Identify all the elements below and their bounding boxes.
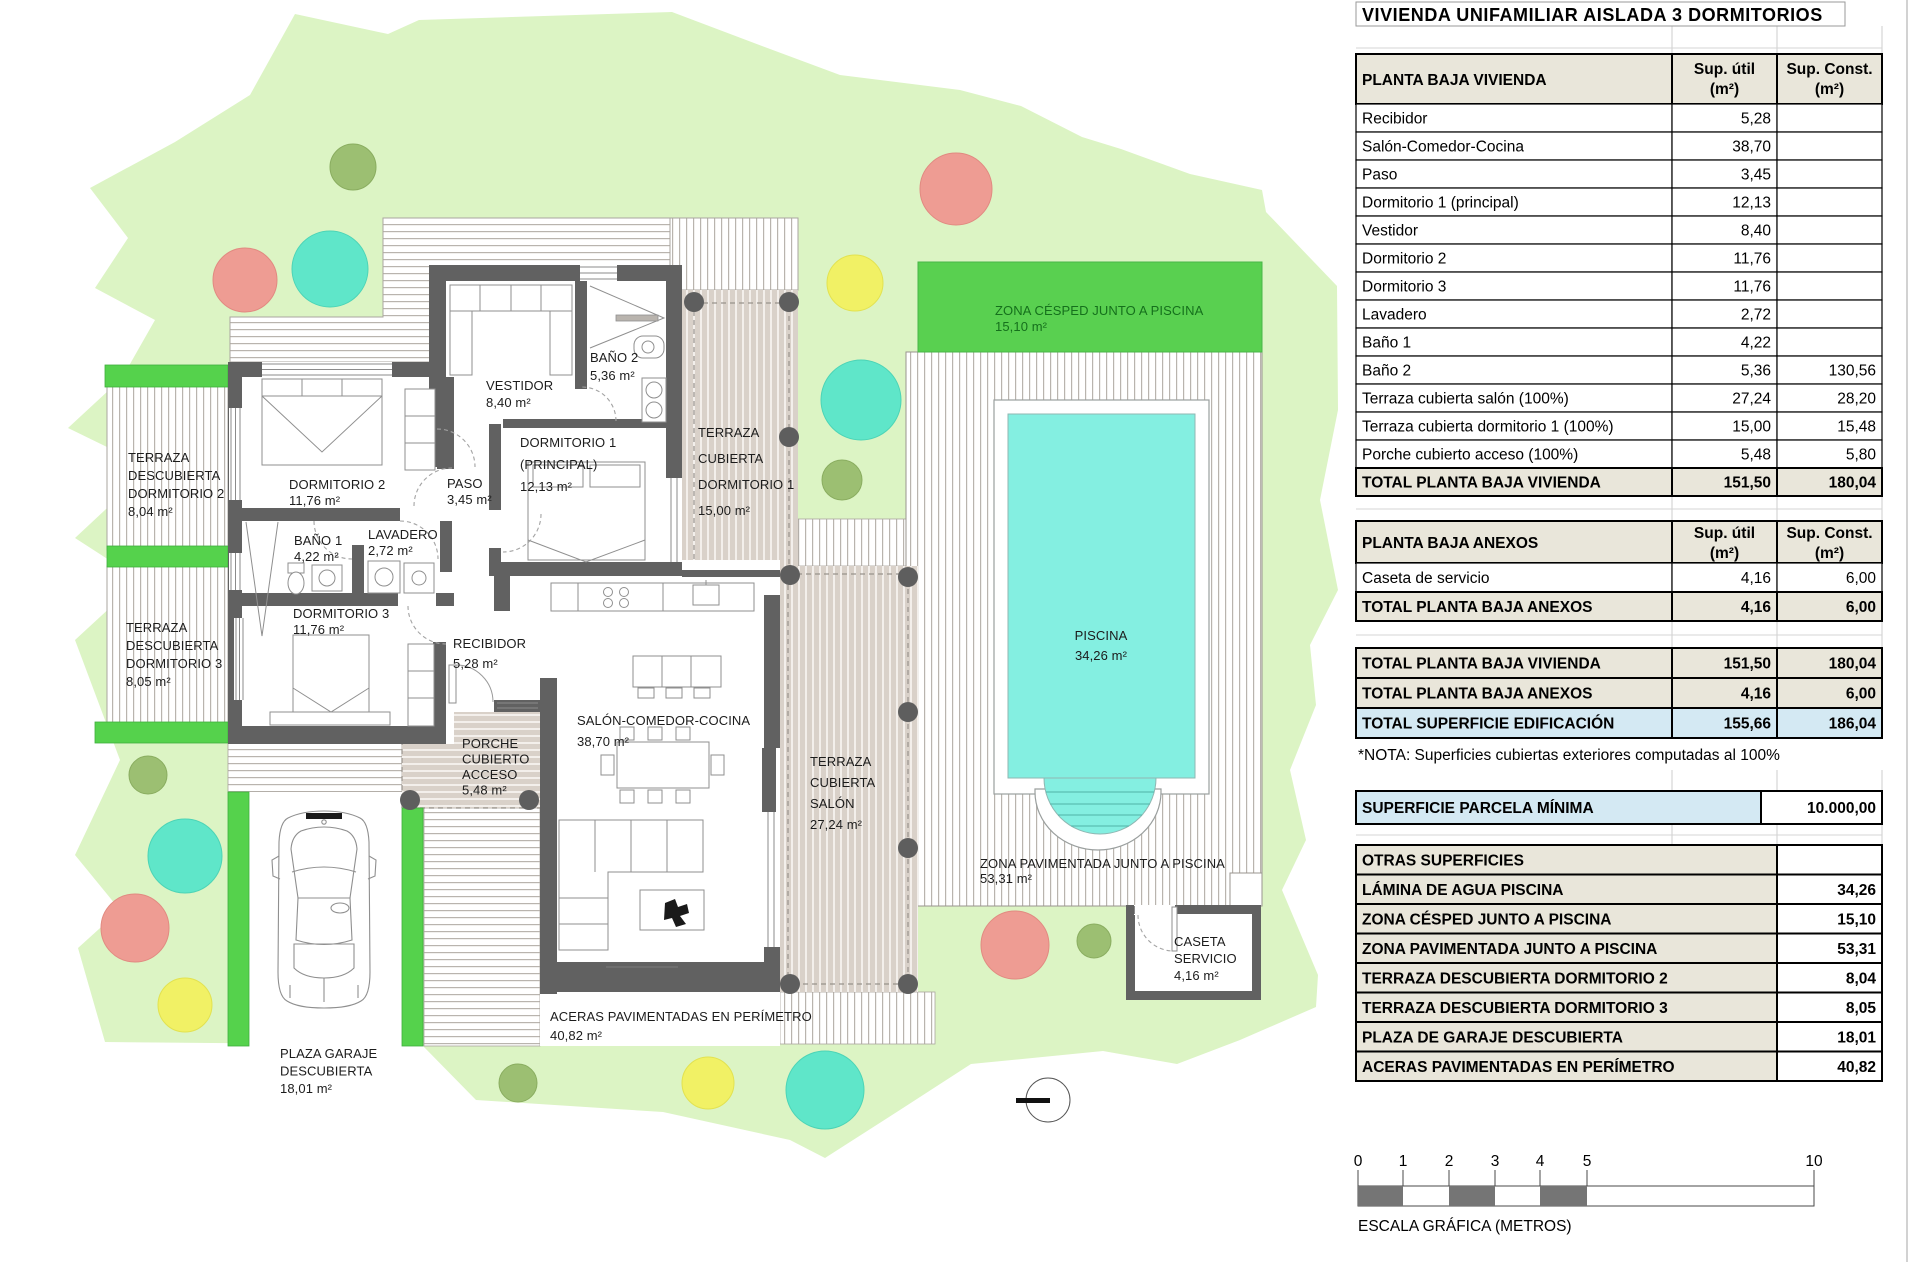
- svg-text:2: 2: [1445, 1153, 1454, 1170]
- svg-text:4: 4: [1536, 1153, 1545, 1170]
- svg-text:15,10 m²: 15,10 m²: [995, 319, 1048, 334]
- svg-text:4,16 m²: 4,16 m²: [1174, 968, 1219, 983]
- svg-text:VIVIENDA UNIFAMILIAR AISLADA 3: VIVIENDA UNIFAMILIAR AISLADA 3 DORMITORI…: [1362, 5, 1823, 25]
- svg-text:18,01 m²: 18,01 m²: [280, 1081, 333, 1096]
- svg-text:11,76: 11,76: [1733, 279, 1771, 296]
- svg-text:CUBIERTO: CUBIERTO: [462, 752, 530, 767]
- svg-text:186,04: 186,04: [1829, 716, 1877, 733]
- svg-text:5,28 m²: 5,28 m²: [453, 656, 498, 671]
- svg-text:RECIBIDOR: RECIBIDOR: [453, 636, 526, 651]
- svg-text:TERRAZA: TERRAZA: [128, 450, 190, 465]
- svg-text:SALÓN-COMEDOR-COCINA: SALÓN-COMEDOR-COCINA: [577, 713, 750, 728]
- svg-text:5: 5: [1583, 1153, 1592, 1170]
- svg-text:SALÓN: SALÓN: [810, 796, 855, 811]
- svg-text:38,70: 38,70: [1732, 139, 1771, 156]
- svg-text:10.000,00: 10.000,00: [1807, 800, 1876, 817]
- svg-text:ZONA PAVIMENTADA JUNTO A PISCI: ZONA PAVIMENTADA JUNTO A PISCINA: [980, 856, 1225, 871]
- svg-text:ACERAS PAVIMENTADAS EN PERÍMET: ACERAS PAVIMENTADAS EN PERÍMETRO: [550, 1009, 812, 1024]
- svg-text:PLAZA DE GARAJE DESCUBIERTA: PLAZA DE GARAJE DESCUBIERTA: [1362, 1029, 1623, 1046]
- svg-text:5,80: 5,80: [1846, 447, 1877, 464]
- svg-text:40,82: 40,82: [1837, 1059, 1876, 1076]
- svg-text:OTRAS SUPERFICIES: OTRAS SUPERFICIES: [1362, 852, 1524, 869]
- svg-text:Salón-Comedor-Cocina: Salón-Comedor-Cocina: [1362, 139, 1524, 156]
- svg-text:15,10: 15,10: [1837, 911, 1876, 928]
- svg-text:Baño 2: Baño 2: [1362, 363, 1411, 380]
- svg-text:BAÑO 1: BAÑO 1: [294, 533, 342, 548]
- svg-text:Sup. útil: Sup. útil: [1694, 525, 1755, 542]
- svg-text:12,13 m²: 12,13 m²: [520, 479, 573, 494]
- svg-text:BAÑO 2: BAÑO 2: [590, 350, 638, 365]
- svg-text:15,00: 15,00: [1732, 419, 1771, 436]
- svg-text:Lavadero: Lavadero: [1362, 307, 1427, 324]
- svg-text:53,31 m²: 53,31 m²: [980, 871, 1033, 886]
- svg-text:Dormitorio 3: Dormitorio 3: [1362, 279, 1446, 296]
- svg-text:PASO: PASO: [447, 476, 483, 491]
- svg-text:11,76 m²: 11,76 m²: [289, 493, 341, 508]
- svg-text:11,76 m²: 11,76 m²: [293, 622, 345, 637]
- svg-text:DESCUBIERTA: DESCUBIERTA: [280, 1064, 373, 1079]
- svg-text:TERRAZA DESCUBIERTA DORMITORIO: TERRAZA DESCUBIERTA DORMITORIO 2: [1362, 970, 1668, 987]
- svg-text:28,20: 28,20: [1837, 391, 1876, 408]
- svg-text:CASETA: CASETA: [1174, 934, 1226, 949]
- svg-text:38,70 m²: 38,70 m²: [577, 734, 630, 749]
- svg-text:TOTAL PLANTA BAJA ANEXOS: TOTAL PLANTA BAJA ANEXOS: [1362, 599, 1593, 616]
- svg-text:DESCUBIERTA: DESCUBIERTA: [128, 468, 221, 483]
- svg-text:180,04: 180,04: [1829, 656, 1877, 673]
- svg-text:151,50: 151,50: [1724, 656, 1771, 673]
- svg-text:Paso: Paso: [1362, 167, 1397, 184]
- svg-text:Baño 1: Baño 1: [1362, 335, 1411, 352]
- svg-text:TERRAZA: TERRAZA: [698, 425, 760, 440]
- svg-text:11,76: 11,76: [1733, 251, 1771, 268]
- svg-text:Dormitorio 1 (principal): Dormitorio 1 (principal): [1362, 195, 1519, 212]
- svg-text:8,40 m²: 8,40 m²: [486, 395, 531, 410]
- svg-text:2,72: 2,72: [1741, 307, 1771, 324]
- svg-text:ZONA CÉSPED JUNTO A PISCINA: ZONA CÉSPED JUNTO A PISCINA: [995, 303, 1204, 318]
- svg-text:Vestidor: Vestidor: [1362, 223, 1418, 240]
- svg-text:SERVICIO: SERVICIO: [1174, 951, 1237, 966]
- svg-text:ZONA PAVIMENTADA JUNTO A PISCI: ZONA PAVIMENTADA JUNTO A PISCINA: [1362, 941, 1657, 958]
- svg-text:6,00: 6,00: [1846, 686, 1876, 703]
- svg-text:8,05 m²: 8,05 m²: [126, 674, 171, 689]
- svg-text:3,45: 3,45: [1741, 167, 1771, 184]
- svg-text:155,66: 155,66: [1724, 716, 1772, 733]
- svg-text:Terraza cubierta dormitorio 1: Terraza cubierta dormitorio 1 (100%): [1362, 419, 1614, 436]
- svg-text:1: 1: [1399, 1153, 1408, 1170]
- svg-text:ACERAS PAVIMENTADAS EN PERÍMET: ACERAS PAVIMENTADAS EN PERÍMETRO: [1362, 1059, 1675, 1076]
- svg-text:(m²): (m²): [1710, 81, 1739, 98]
- svg-text:180,04: 180,04: [1829, 475, 1877, 492]
- svg-text:SUPERFICIE PARCELA MÍNIMA: SUPERFICIE PARCELA MÍNIMA: [1362, 800, 1594, 817]
- svg-text:DESCUBIERTA: DESCUBIERTA: [126, 638, 219, 653]
- svg-text:PLAZA GARAJE: PLAZA GARAJE: [280, 1046, 378, 1061]
- svg-text:ZONA CÉSPED JUNTO A PISCINA: ZONA CÉSPED JUNTO A PISCINA: [1362, 911, 1611, 928]
- svg-text:Sup. útil: Sup. útil: [1694, 61, 1755, 78]
- svg-text:8,05: 8,05: [1846, 1000, 1877, 1017]
- svg-text:4,22: 4,22: [1741, 335, 1771, 352]
- svg-text:5,48: 5,48: [1741, 447, 1771, 464]
- svg-text:ESCALA GRÁFICA (METROS): ESCALA GRÁFICA (METROS): [1358, 1218, 1572, 1235]
- svg-text:15,48: 15,48: [1837, 419, 1876, 436]
- svg-text:(m²): (m²): [1710, 545, 1739, 562]
- svg-text:12,13: 12,13: [1732, 195, 1771, 212]
- svg-text:Terraza cubierta salón (100%): Terraza cubierta salón (100%): [1362, 391, 1569, 408]
- svg-text:(PRINCIPAL): (PRINCIPAL): [520, 457, 597, 472]
- svg-text:DORMITORIO 3: DORMITORIO 3: [293, 606, 389, 621]
- svg-text:4,16: 4,16: [1741, 570, 1771, 587]
- svg-text:4,16: 4,16: [1741, 686, 1772, 703]
- svg-text:LAVADERO: LAVADERO: [368, 527, 438, 542]
- svg-text:5,28: 5,28: [1741, 111, 1771, 128]
- svg-text:TERRAZA: TERRAZA: [126, 620, 188, 635]
- svg-text:3,45 m²: 3,45 m²: [447, 492, 492, 507]
- svg-text:(m²): (m²): [1815, 545, 1844, 562]
- svg-text:TOTAL PLANTA BAJA ANEXOS: TOTAL PLANTA BAJA ANEXOS: [1362, 686, 1593, 703]
- svg-text:4,22 m²: 4,22 m²: [294, 549, 339, 564]
- svg-text:5,36 m²: 5,36 m²: [590, 368, 635, 383]
- svg-text:0: 0: [1354, 1153, 1363, 1170]
- svg-text:10: 10: [1805, 1153, 1823, 1170]
- svg-text:Dormitorio 2: Dormitorio 2: [1362, 251, 1446, 268]
- svg-text:PLANTA BAJA ANEXOS: PLANTA BAJA ANEXOS: [1362, 535, 1538, 552]
- svg-text:5,36: 5,36: [1741, 363, 1771, 380]
- svg-text:34,26 m²: 34,26 m²: [1075, 648, 1128, 663]
- svg-text:40,82 m²: 40,82 m²: [550, 1028, 603, 1043]
- svg-text:VESTIDOR: VESTIDOR: [486, 378, 553, 393]
- svg-text:Porche cubierto acceso (100%): Porche cubierto acceso (100%): [1362, 447, 1578, 464]
- svg-text:Caseta de servicio: Caseta de servicio: [1362, 570, 1490, 587]
- svg-text:Recibidor: Recibidor: [1362, 111, 1427, 128]
- svg-text:CUBIERTA: CUBIERTA: [810, 775, 876, 790]
- svg-text:(m²): (m²): [1815, 81, 1844, 98]
- svg-text:*NOTA: Superficies cubiertas e: *NOTA: Superficies cubiertas exteriores …: [1358, 747, 1780, 764]
- svg-text:8,04 m²: 8,04 m²: [128, 504, 173, 519]
- svg-text:27,24: 27,24: [1732, 391, 1771, 408]
- svg-text:PLANTA BAJA VIVIENDA: PLANTA BAJA VIVIENDA: [1362, 72, 1547, 89]
- svg-text:151,50: 151,50: [1724, 475, 1771, 492]
- svg-text:3: 3: [1491, 1153, 1500, 1170]
- svg-text:4,16: 4,16: [1741, 599, 1772, 616]
- svg-text:DORMITORIO 2: DORMITORIO 2: [289, 477, 385, 492]
- svg-text:130,56: 130,56: [1829, 363, 1876, 380]
- svg-text:LÁMINA DE AGUA PISCINA: LÁMINA DE AGUA PISCINA: [1362, 882, 1564, 899]
- svg-text:TERRAZA: TERRAZA: [810, 754, 872, 769]
- svg-text:6,00: 6,00: [1846, 599, 1876, 616]
- svg-text:DORMITORIO 1: DORMITORIO 1: [698, 477, 794, 492]
- svg-text:DORMITORIO 2: DORMITORIO 2: [128, 486, 224, 501]
- svg-text:CUBIERTA: CUBIERTA: [698, 451, 764, 466]
- svg-text:TOTAL PLANTA BAJA VIVIENDA: TOTAL PLANTA BAJA VIVIENDA: [1362, 656, 1601, 673]
- svg-text:TOTAL SUPERFICIE EDIFICACIÓN: TOTAL SUPERFICIE EDIFICACIÓN: [1362, 715, 1614, 733]
- svg-text:Sup. Const.: Sup. Const.: [1786, 61, 1872, 78]
- svg-text:PISCINA: PISCINA: [1075, 628, 1128, 643]
- svg-text:5,48 m²: 5,48 m²: [462, 783, 507, 798]
- svg-text:8,04: 8,04: [1846, 970, 1877, 987]
- svg-text:6,00: 6,00: [1846, 570, 1877, 587]
- svg-text:15,00 m²: 15,00 m²: [698, 503, 751, 518]
- svg-text:18,01: 18,01: [1837, 1029, 1876, 1046]
- svg-text:53,31: 53,31: [1837, 941, 1876, 958]
- svg-text:DORMITORIO 1: DORMITORIO 1: [520, 435, 616, 450]
- svg-text:34,26: 34,26: [1837, 882, 1876, 899]
- svg-text:2,72 m²: 2,72 m²: [368, 543, 413, 558]
- svg-text:Sup. Const.: Sup. Const.: [1786, 525, 1872, 542]
- svg-text:8,40: 8,40: [1741, 223, 1772, 240]
- svg-text:TERRAZA DESCUBIERTA DORMITORIO: TERRAZA DESCUBIERTA DORMITORIO 3: [1362, 1000, 1668, 1017]
- svg-text:TOTAL PLANTA BAJA VIVIENDA: TOTAL PLANTA BAJA VIVIENDA: [1362, 475, 1601, 492]
- svg-text:PORCHE: PORCHE: [462, 736, 518, 751]
- svg-text:ACCESO: ACCESO: [462, 767, 518, 782]
- svg-text:27,24 m²: 27,24 m²: [810, 817, 863, 832]
- svg-text:DORMITORIO 3: DORMITORIO 3: [126, 656, 222, 671]
